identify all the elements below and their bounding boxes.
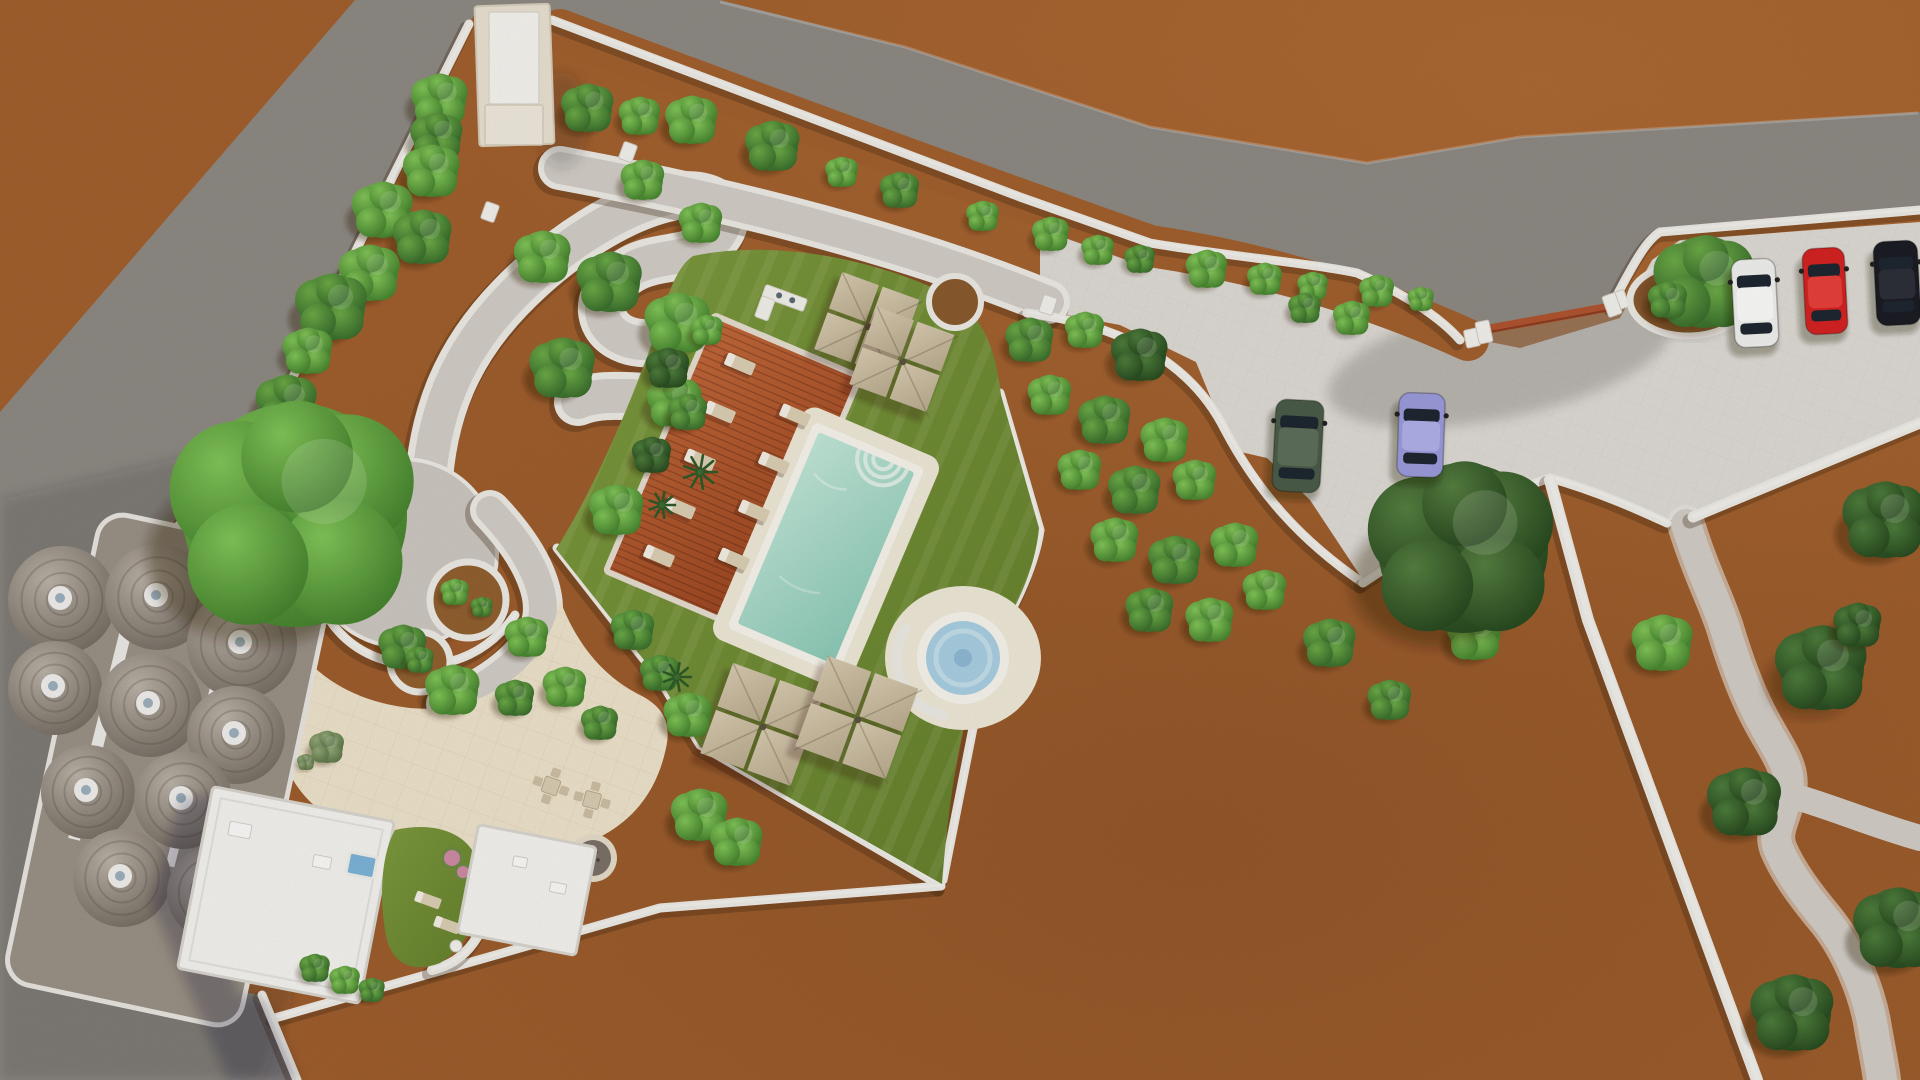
site-plan-render xyxy=(0,0,1920,1080)
effects-layer xyxy=(0,0,1920,1080)
aerial-masterplan-svg xyxy=(0,0,1920,1080)
film-grain xyxy=(0,0,1920,1080)
